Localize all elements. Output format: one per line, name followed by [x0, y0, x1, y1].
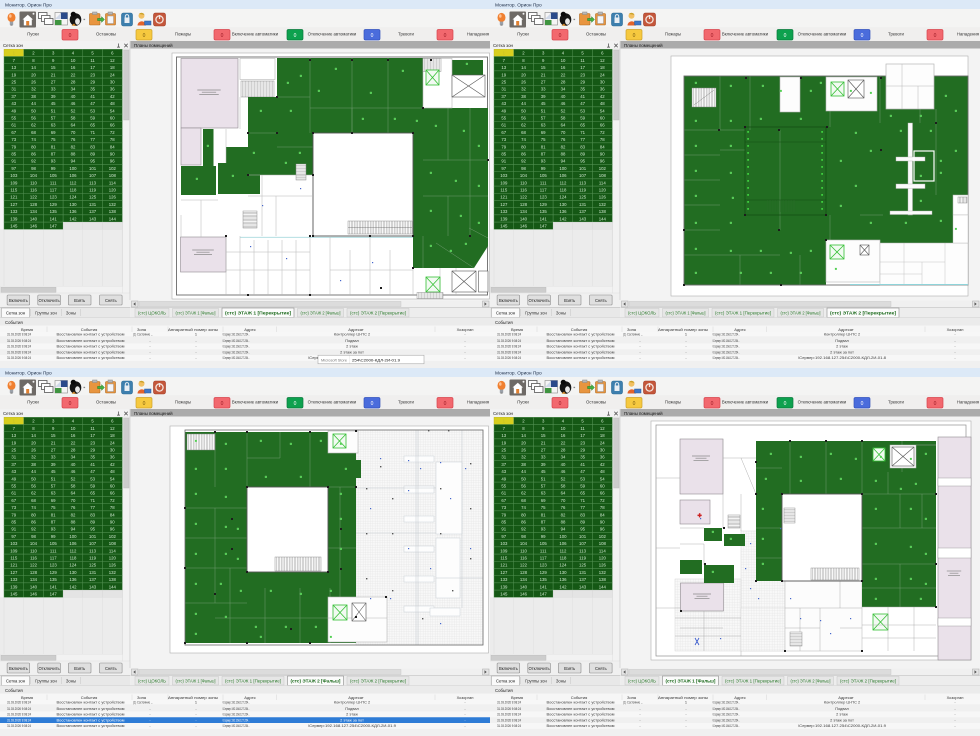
svg-text:Пуски: Пуски	[27, 31, 39, 36]
svg-text:62: 62	[521, 491, 526, 496]
svg-text:61: 61	[501, 123, 506, 128]
svg-text:14: 14	[521, 65, 526, 70]
svg-text:113: 113	[89, 180, 96, 185]
svg-text:129: 129	[50, 202, 58, 207]
svg-text:0: 0	[371, 33, 374, 39]
svg-text:127: 127	[10, 570, 18, 575]
svg-text:106: 106	[69, 173, 77, 178]
svg-text:Снять: Снять	[595, 666, 608, 671]
svg-text:46: 46	[561, 101, 566, 106]
svg-text:109: 109	[10, 548, 18, 553]
svg-text:143: 143	[89, 584, 97, 589]
svg-text:38: 38	[521, 94, 526, 99]
svg-text:131: 131	[579, 202, 587, 207]
svg-text:0: 0	[221, 33, 224, 39]
svg-text:67: 67	[11, 498, 16, 503]
svg-text:135: 135	[540, 209, 548, 214]
svg-text:29: 29	[90, 448, 95, 453]
svg-text:36: 36	[600, 87, 605, 92]
svg-text:41: 41	[580, 462, 585, 467]
svg-text:64: 64	[71, 491, 76, 496]
svg-text:2 этаж за пот: 2 этаж за пот	[340, 717, 364, 722]
svg-text:128: 128	[30, 570, 38, 575]
svg-text:17: 17	[90, 65, 95, 70]
svg-text:68: 68	[31, 130, 36, 135]
svg-text:91: 91	[501, 527, 506, 532]
svg-text:143: 143	[579, 584, 587, 589]
svg-text:87: 87	[541, 152, 546, 157]
svg-text:Тревоги: Тревоги	[398, 399, 414, 404]
svg-text:Подвал: Подвал	[835, 706, 849, 711]
svg-text:Включить: Включить	[499, 298, 519, 303]
svg-text:63: 63	[541, 123, 546, 128]
svg-text:Зоны: Зоны	[66, 311, 76, 316]
svg-text:16: 16	[71, 433, 76, 438]
svg-text:254\С2000-КДЛ-2И-01.9: 254\С2000-КДЛ-2И-01.9	[352, 357, 400, 362]
svg-text:44: 44	[31, 469, 36, 474]
svg-text:Включение автоматики: Включение автоматики	[722, 31, 769, 36]
svg-text:88: 88	[71, 520, 76, 525]
svg-text:(1) Состояние ...: (1) Состояние ...	[623, 699, 643, 704]
svg-text:50: 50	[31, 476, 36, 481]
svg-text:146: 146	[520, 224, 528, 229]
svg-text:124: 124	[69, 195, 77, 200]
svg-text:123: 123	[540, 195, 548, 200]
svg-text:Зоны: Зоны	[556, 311, 566, 316]
svg-text:35: 35	[90, 87, 95, 92]
svg-text:90: 90	[600, 152, 605, 157]
svg-text:114: 114	[109, 180, 116, 185]
svg-text:События: События	[5, 688, 23, 693]
svg-text:102: 102	[599, 166, 607, 171]
svg-text:112: 112	[70, 548, 77, 553]
svg-text:102: 102	[109, 534, 117, 539]
svg-text:92: 92	[31, 159, 36, 164]
svg-text:99: 99	[51, 166, 56, 171]
svg-text:140: 140	[30, 216, 38, 221]
svg-text:43: 43	[11, 469, 16, 474]
svg-text:108: 108	[109, 173, 117, 178]
svg-text:65: 65	[580, 123, 585, 128]
svg-text:103: 103	[10, 541, 18, 546]
svg-text:1: 1	[195, 699, 197, 704]
svg-text:105: 105	[540, 541, 548, 546]
svg-text:111: 111	[540, 548, 547, 553]
svg-text:2 этаж: 2 этаж	[346, 712, 358, 717]
svg-text:30: 30	[600, 80, 605, 85]
svg-text:39: 39	[51, 462, 56, 467]
svg-text:51: 51	[541, 108, 546, 113]
svg-text:91: 91	[11, 527, 16, 532]
svg-text:129: 129	[540, 570, 548, 575]
svg-text:26: 26	[31, 448, 36, 453]
svg-text:107: 107	[89, 173, 97, 178]
svg-text:77: 77	[580, 505, 585, 510]
svg-text:48: 48	[110, 101, 115, 106]
svg-text:139: 139	[10, 584, 18, 589]
svg-text:12: 12	[110, 426, 115, 431]
svg-text:11: 11	[580, 426, 585, 431]
svg-text:События: События	[495, 688, 513, 693]
svg-text:147: 147	[540, 224, 548, 229]
svg-text:60: 60	[110, 484, 115, 489]
svg-text:124: 124	[559, 195, 567, 200]
svg-text:108: 108	[599, 541, 607, 546]
svg-text:Включение автоматики: Включение автоматики	[722, 399, 769, 404]
svg-text:34: 34	[71, 87, 76, 92]
svg-text:104: 104	[30, 173, 38, 178]
svg-text:Восстановлен контакт с устройс: Восстановлен контакт с устройством	[57, 706, 125, 711]
svg-text:31.03.2026 9:08:24: 31.03.2026 9:08:24	[7, 699, 32, 704]
svg-text:136: 136	[69, 577, 77, 582]
svg-text:137: 137	[579, 577, 587, 582]
svg-text:57: 57	[51, 484, 56, 489]
svg-text:0: 0	[559, 401, 562, 407]
svg-text:118: 118	[70, 556, 77, 561]
svg-text:Восстановлен контакт с устройс: Восстановлен контакт с устройством	[547, 344, 615, 349]
svg-text:21: 21	[541, 440, 546, 445]
svg-text:144: 144	[109, 584, 117, 589]
svg-text:37: 37	[11, 462, 16, 467]
svg-text:101: 101	[89, 166, 97, 171]
svg-text:47: 47	[90, 469, 95, 474]
svg-text:99: 99	[541, 534, 546, 539]
svg-text:128: 128	[520, 202, 528, 207]
svg-text:100: 100	[69, 534, 77, 539]
svg-text:Восстановлен контакт с устройс: Восстановлен контакт с устройством	[57, 349, 125, 354]
svg-text:61: 61	[11, 123, 16, 128]
svg-text:36: 36	[110, 455, 115, 460]
svg-text:Монитор. Орион Про: Монитор. Орион Про	[5, 371, 52, 377]
svg-text:\Сервер:192.168.127.254\С2000-: \Сервер:192.168.127.254\С2000-КДЛ-2И-01.…	[308, 723, 396, 728]
svg-text:31: 31	[11, 87, 16, 92]
svg-text:51: 51	[51, 108, 56, 113]
svg-text:115: 115	[500, 188, 507, 193]
svg-text:69: 69	[541, 130, 546, 135]
svg-text:0: 0	[784, 401, 787, 407]
svg-text:59: 59	[580, 116, 585, 121]
svg-text:15: 15	[51, 65, 56, 70]
svg-text:53: 53	[580, 476, 585, 481]
svg-text:115: 115	[10, 188, 17, 193]
svg-text:42: 42	[110, 462, 115, 467]
svg-text:\Сервер:192.168.127.254..: \Сервер:192.168.127.254..	[713, 699, 740, 704]
svg-text:72: 72	[110, 130, 115, 135]
svg-text:0: 0	[861, 33, 864, 39]
svg-text:76: 76	[561, 137, 566, 142]
svg-text:1: 1	[195, 331, 197, 336]
svg-text:0: 0	[143, 401, 146, 407]
svg-text:71: 71	[90, 130, 95, 135]
svg-text:122: 122	[30, 563, 38, 568]
svg-text:Тревоги: Тревоги	[398, 31, 414, 36]
svg-text:79: 79	[11, 144, 16, 149]
svg-text:120: 120	[599, 188, 607, 193]
svg-text:146: 146	[520, 592, 528, 597]
svg-text:Сетка зон: Сетка зон	[3, 43, 24, 48]
svg-text:147: 147	[50, 224, 58, 229]
svg-text:109: 109	[10, 180, 18, 185]
svg-text:15: 15	[541, 65, 546, 70]
svg-text:112: 112	[70, 180, 77, 185]
svg-text:43: 43	[501, 469, 506, 474]
svg-text:73: 73	[11, 137, 16, 142]
svg-text:125: 125	[579, 195, 587, 200]
svg-text:56: 56	[521, 116, 526, 121]
svg-text:125: 125	[579, 563, 587, 568]
svg-text:42: 42	[110, 94, 115, 99]
svg-text:41: 41	[90, 94, 95, 99]
svg-text:100: 100	[69, 166, 77, 171]
svg-text:122: 122	[520, 563, 528, 568]
svg-text:142: 142	[559, 584, 567, 589]
svg-text:37: 37	[501, 94, 506, 99]
svg-text:Остановы: Остановы	[586, 399, 606, 404]
svg-text:31.03.2026 9:08:24: 31.03.2026 9:08:24	[7, 338, 32, 343]
svg-text:49: 49	[11, 476, 16, 481]
svg-text:31.03.2026 9:08:24: 31.03.2026 9:08:24	[7, 344, 32, 349]
svg-text:55: 55	[11, 484, 16, 489]
svg-text:51: 51	[51, 476, 56, 481]
svg-text:65: 65	[90, 491, 95, 496]
svg-text:73: 73	[501, 505, 506, 510]
svg-text:31.03.2026 9:08:24: 31.03.2026 9:08:24	[7, 717, 32, 722]
svg-text:31.03.2026 9:08:24: 31.03.2026 9:08:24	[7, 349, 32, 354]
svg-text:125: 125	[89, 563, 97, 568]
svg-text:\Сервер:192.168.127.254..: \Сервер:192.168.127.254..	[713, 344, 740, 349]
svg-text:18: 18	[110, 433, 115, 438]
svg-text:83: 83	[580, 144, 585, 149]
svg-text:140: 140	[30, 584, 38, 589]
svg-text:111: 111	[50, 548, 57, 553]
svg-text:Восстановлен контакт с устройс: Восстановлен контакт с устройством	[547, 723, 615, 728]
svg-text:37: 37	[501, 462, 506, 467]
svg-text:131: 131	[89, 570, 97, 575]
svg-text:130: 130	[559, 202, 567, 207]
svg-text:50: 50	[521, 476, 526, 481]
svg-text:31.03.2026 9:08:24: 31.03.2026 9:08:24	[497, 344, 522, 349]
svg-text:109: 109	[500, 180, 508, 185]
svg-text:31: 31	[501, 455, 506, 460]
svg-text:78: 78	[600, 505, 605, 510]
svg-text:0: 0	[69, 401, 72, 407]
svg-text:81: 81	[541, 512, 546, 517]
svg-text:54: 54	[600, 108, 605, 113]
svg-text:107: 107	[579, 541, 587, 546]
svg-text:\Сервер:192.168.127.254..: \Сервер:192.168.127.254..	[713, 331, 740, 336]
svg-text:54: 54	[110, 476, 115, 481]
svg-text:127: 127	[500, 570, 508, 575]
svg-text:Сетка зон: Сетка зон	[3, 411, 24, 416]
svg-text:22: 22	[71, 72, 76, 77]
svg-text:122: 122	[30, 195, 38, 200]
svg-text:64: 64	[561, 491, 566, 496]
svg-text:45: 45	[541, 101, 546, 106]
svg-text:90: 90	[110, 520, 115, 525]
svg-text:80: 80	[521, 512, 526, 517]
svg-text:65: 65	[90, 123, 95, 128]
svg-text:28: 28	[71, 448, 76, 453]
svg-text:98: 98	[521, 166, 526, 171]
svg-text:53: 53	[90, 476, 95, 481]
svg-text:78: 78	[110, 137, 115, 142]
svg-text:137: 137	[579, 209, 587, 214]
svg-text:59: 59	[580, 484, 585, 489]
svg-text:0: 0	[444, 401, 447, 407]
svg-text:(стс) ЭТАЖ 2 [Фальш]: (стс) ЭТАЖ 2 [Фальш]	[781, 310, 821, 315]
svg-text:15: 15	[541, 433, 546, 438]
svg-text:25: 25	[501, 80, 506, 85]
svg-text:Пуски: Пуски	[27, 399, 39, 404]
svg-text:95: 95	[580, 527, 585, 532]
svg-text:104: 104	[520, 541, 528, 546]
svg-text:Контроллер Ш-ПС 2: Контроллер Ш-ПС 2	[334, 699, 370, 704]
svg-text:135: 135	[540, 577, 548, 582]
svg-text:137: 137	[89, 577, 97, 582]
svg-text:(стс) ЭТАЖ 2 [Перекрытие]: (стс) ЭТАЖ 2 [Перекрытие]	[830, 310, 897, 315]
svg-text:28: 28	[561, 80, 566, 85]
svg-text:88: 88	[561, 152, 566, 157]
svg-text:17: 17	[580, 65, 585, 70]
svg-text:94: 94	[71, 159, 76, 164]
svg-text:133: 133	[500, 577, 508, 582]
svg-text:138: 138	[599, 577, 607, 582]
svg-text:80: 80	[31, 144, 36, 149]
svg-text:116: 116	[30, 188, 37, 193]
svg-text:138: 138	[599, 209, 607, 214]
svg-text:Восстановлен контакт с устройс: Восстановлен контакт с устройством	[547, 331, 615, 336]
svg-text:105: 105	[50, 173, 58, 178]
svg-text:23: 23	[90, 440, 95, 445]
svg-text:72: 72	[110, 498, 115, 503]
svg-text:Взять: Взять	[74, 298, 86, 303]
svg-text:100: 100	[559, 166, 567, 171]
svg-text:13: 13	[501, 433, 506, 438]
svg-text:Отключить: Отключить	[39, 298, 61, 303]
svg-text:\Сервер:192.168.127.254..: \Сервер:192.168.127.254..	[713, 706, 740, 711]
svg-text:92: 92	[521, 527, 526, 532]
svg-text:\Сервер:192.168.127.254..: \Сервер:192.168.127.254..	[223, 344, 250, 349]
svg-text:104: 104	[520, 173, 528, 178]
svg-text:Восстановлен контакт с устройс: Восстановлен контакт с устройством	[547, 712, 615, 717]
svg-text:140: 140	[520, 584, 528, 589]
svg-text:102: 102	[109, 166, 117, 171]
svg-text:71: 71	[580, 498, 585, 503]
svg-text:Восстановлен контакт с устройс: Восстановлен контакт с устройством	[57, 712, 125, 717]
svg-text:25: 25	[501, 448, 506, 453]
svg-text:121: 121	[10, 563, 18, 568]
svg-text:138: 138	[109, 577, 117, 582]
svg-text:123: 123	[50, 563, 58, 568]
svg-text:77: 77	[580, 137, 585, 142]
svg-text:79: 79	[11, 512, 16, 517]
svg-text:2 этаж за пот: 2 этаж за пот	[830, 349, 854, 354]
svg-text:Отключение автоматики: Отключение автоматики	[798, 399, 847, 404]
svg-text:98: 98	[521, 534, 526, 539]
svg-text:76: 76	[561, 505, 566, 510]
svg-text:93: 93	[541, 527, 546, 532]
svg-text:0: 0	[711, 401, 714, 407]
svg-text:94: 94	[71, 527, 76, 532]
svg-text:31: 31	[11, 455, 16, 460]
svg-text:68: 68	[521, 130, 526, 135]
svg-text:31.03.2026 9:08:24: 31.03.2026 9:08:24	[497, 712, 522, 717]
svg-text:Восстановлен контакт с устройс: Восстановлен контакт с устройством	[547, 699, 615, 704]
svg-text:53: 53	[580, 108, 585, 113]
svg-text:Включить: Включить	[9, 298, 29, 303]
svg-text:79: 79	[501, 144, 506, 149]
svg-text:Отключение автоматики: Отключение автоматики	[308, 399, 357, 404]
svg-text:66: 66	[600, 491, 605, 496]
svg-text:Взять: Взять	[564, 666, 576, 671]
svg-text:(стс) ЭТАЖ 2 [Перекрытие]: (стс) ЭТАЖ 2 [Перекрытие]	[350, 310, 406, 315]
svg-text:117: 117	[540, 188, 547, 193]
svg-text:96: 96	[110, 527, 115, 532]
svg-text:140: 140	[520, 216, 528, 221]
svg-text:98: 98	[31, 534, 36, 539]
svg-text:95: 95	[580, 159, 585, 164]
svg-text:31.03.2026 9:08:24: 31.03.2026 9:08:24	[497, 331, 522, 336]
svg-text:53: 53	[90, 108, 95, 113]
svg-text:96: 96	[600, 159, 605, 164]
svg-text:119: 119	[579, 556, 586, 561]
svg-text:119: 119	[89, 556, 96, 561]
svg-text:20: 20	[521, 72, 526, 77]
svg-text:18: 18	[110, 65, 115, 70]
svg-text:84: 84	[600, 512, 605, 517]
svg-text:133: 133	[10, 577, 18, 582]
svg-text:2 этаж за пот: 2 этаж за пот	[340, 349, 364, 354]
svg-text:Сетка зон: Сетка зон	[6, 679, 26, 684]
svg-text:Пожары: Пожары	[665, 399, 681, 404]
svg-text:Microsoft Store: Microsoft Store	[321, 357, 347, 362]
svg-text:66: 66	[600, 123, 605, 128]
svg-text:127: 127	[500, 202, 508, 207]
svg-text:24: 24	[110, 440, 115, 445]
svg-text:12: 12	[600, 58, 605, 63]
svg-text:109: 109	[500, 548, 508, 553]
svg-text:46: 46	[561, 469, 566, 474]
svg-text:0: 0	[934, 401, 937, 407]
svg-text:38: 38	[31, 94, 36, 99]
svg-text:147: 147	[50, 592, 58, 597]
svg-text:Нападения: Нападения	[957, 31, 980, 36]
svg-text:(1) Состояние ...: (1) Состояние ...	[133, 699, 153, 704]
svg-text:61: 61	[501, 491, 506, 496]
svg-text:99: 99	[51, 534, 56, 539]
svg-text:111: 111	[50, 180, 57, 185]
svg-text:\Сервер:192.168.127.254..: \Сервер:192.168.127.254..	[223, 331, 250, 336]
svg-text:Группы зон: Группы зон	[525, 311, 547, 316]
svg-text:50: 50	[521, 108, 526, 113]
svg-text:24: 24	[600, 440, 605, 445]
svg-text:Восстановлен контакт с устройс: Восстановлен контакт с устройством	[547, 349, 615, 354]
svg-text:0: 0	[934, 33, 937, 39]
svg-text:(стс) ЭТАЖ 2 [Перекрытие]: (стс) ЭТАЖ 2 [Перекрытие]	[350, 678, 406, 683]
svg-text:2 этаж: 2 этаж	[836, 344, 848, 349]
svg-text:Снять: Снять	[595, 298, 608, 303]
svg-text:81: 81	[541, 144, 546, 149]
svg-text:124: 124	[559, 563, 567, 568]
svg-text:1: 1	[685, 699, 687, 704]
svg-text:79: 79	[501, 512, 506, 517]
svg-text:39: 39	[541, 94, 546, 99]
svg-text:85: 85	[501, 520, 506, 525]
svg-text:82: 82	[561, 144, 566, 149]
svg-text:18: 18	[600, 65, 605, 70]
svg-text:\Сервер:192.168.127.254..: \Сервер:192.168.127.254..	[223, 699, 250, 704]
svg-text:74: 74	[521, 505, 526, 510]
